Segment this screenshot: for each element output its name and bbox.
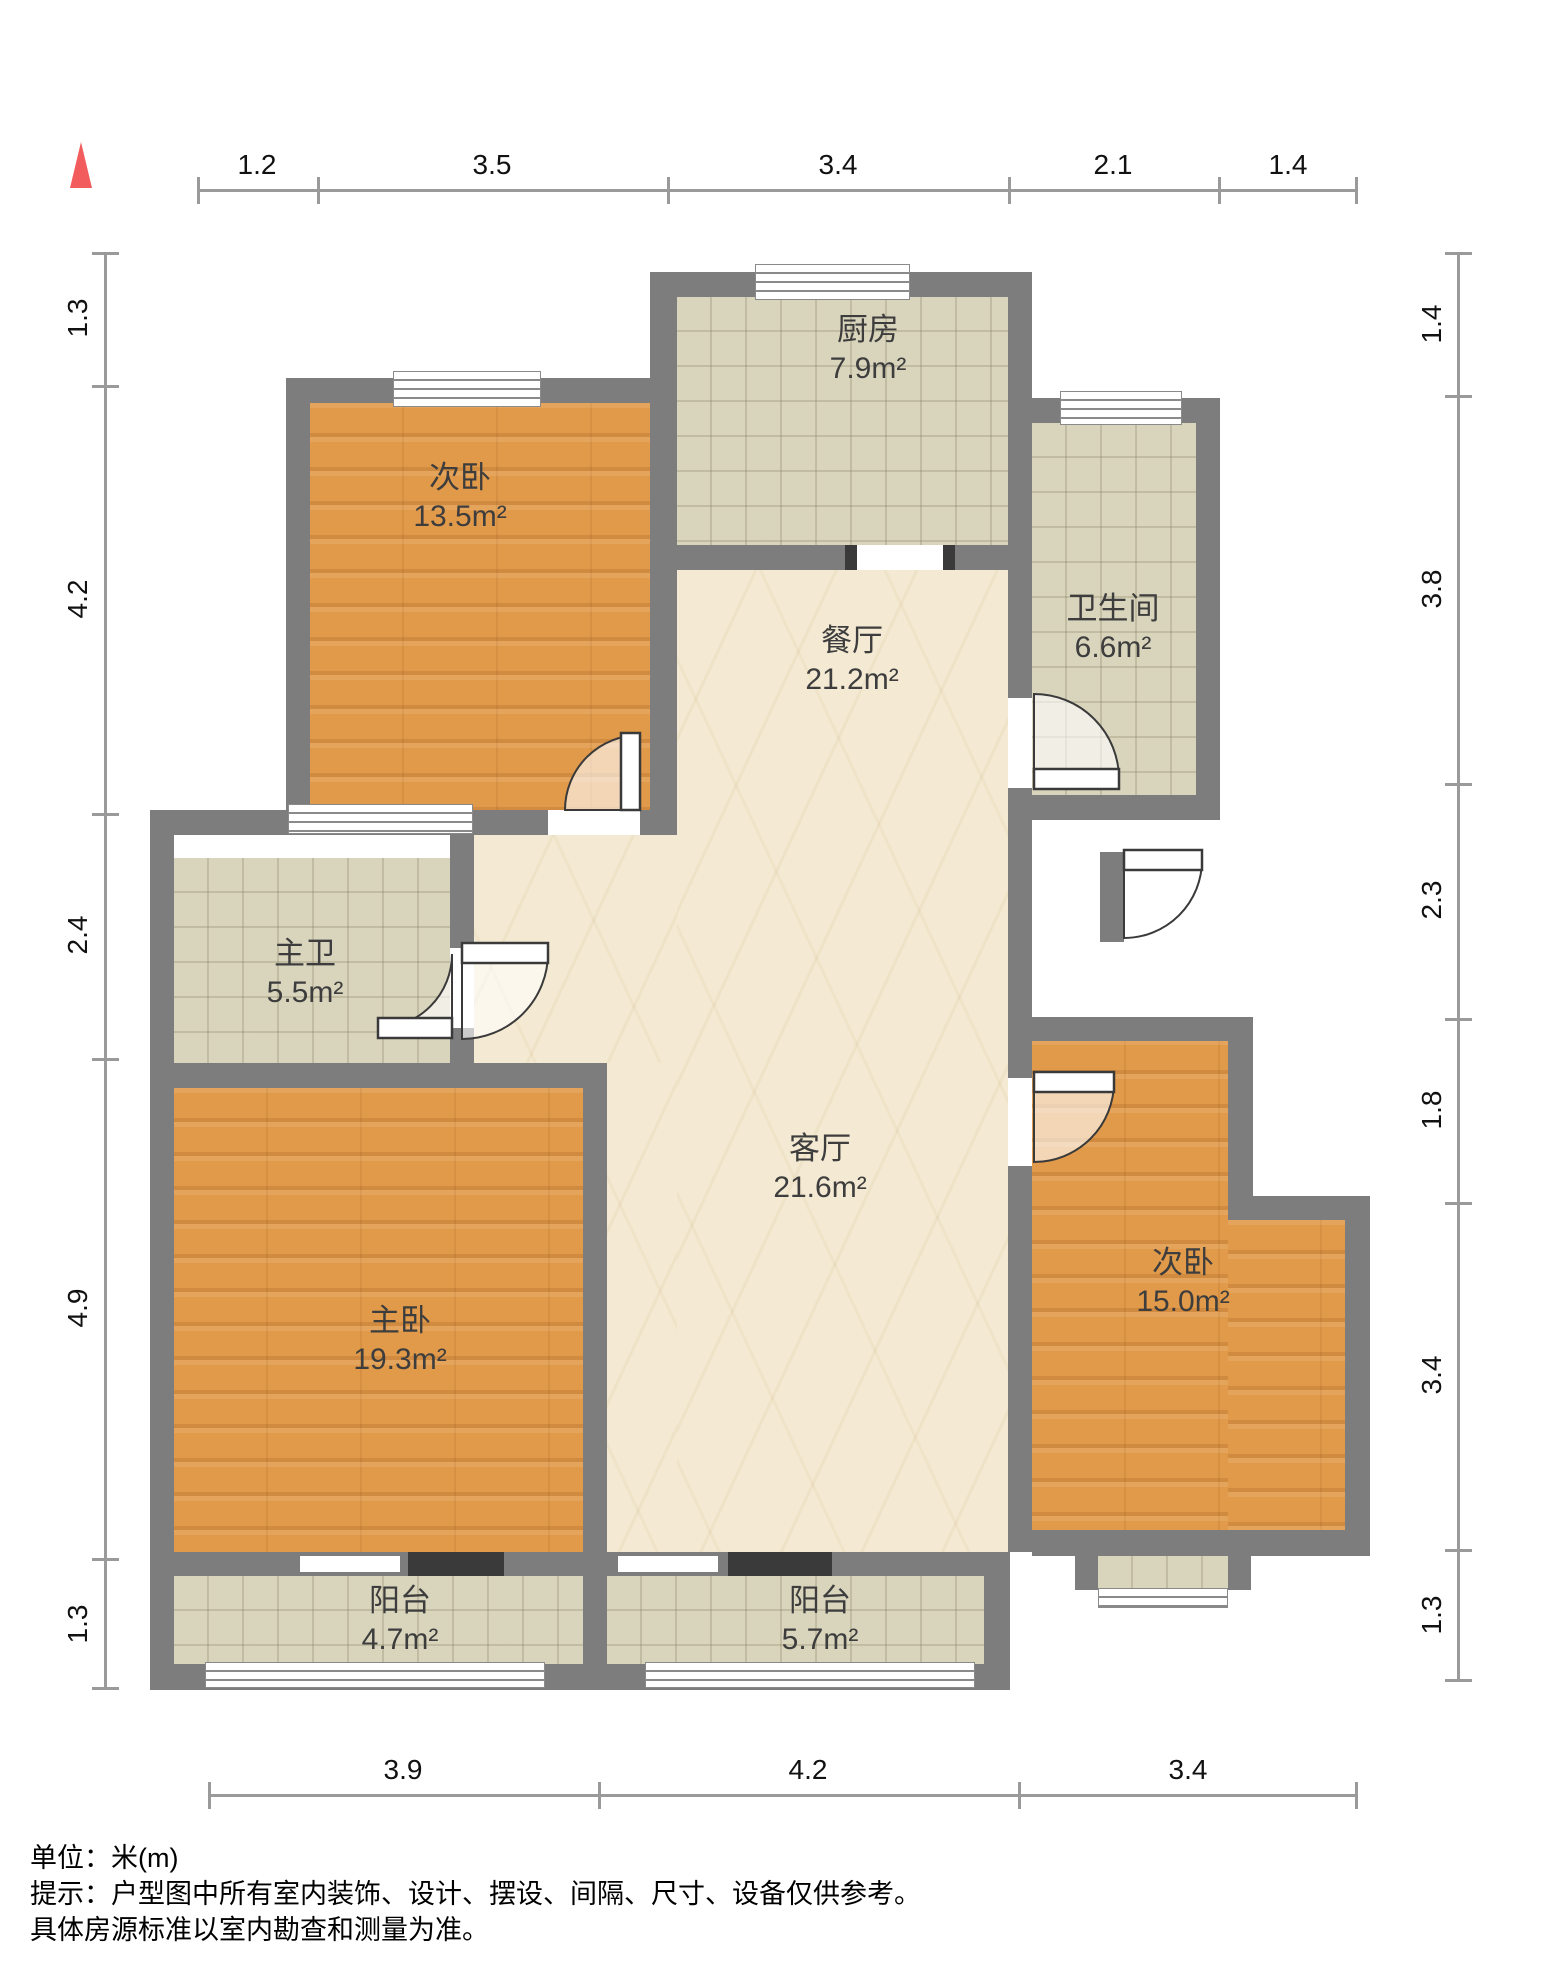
room-name: 阳台 xyxy=(782,1581,859,1621)
entry-door-arc xyxy=(1124,860,1202,938)
ruler-tick xyxy=(92,1558,119,1561)
ruler-bottom-line xyxy=(208,1794,1358,1797)
room-area: 5.5m² xyxy=(267,974,344,1012)
ruler-tick xyxy=(1445,783,1472,786)
dim-label: 3.4 xyxy=(1169,1754,1208,1786)
footer-disclaimer: 单位：米(m) 提示：户型图中所有室内装饰、设计、摆设、间隔、尺寸、设备仅供参考… xyxy=(30,1840,1530,1948)
door-leaf xyxy=(378,1018,452,1038)
room-name: 主卫 xyxy=(267,934,344,974)
room-name: 次卧 xyxy=(1136,1243,1229,1283)
room-label-balcony-right: 阳台 5.7m² xyxy=(782,1581,859,1659)
room-area: 7.9m² xyxy=(830,350,907,388)
ruler-tick xyxy=(1445,1018,1472,1021)
ruler-top-line xyxy=(197,189,1358,192)
footer-tip-line: 提示：户型图中所有室内装饰、设计、摆设、间隔、尺寸、设备仅供参考。 xyxy=(30,1876,1530,1912)
ruler-tick xyxy=(667,177,670,204)
room-label-bedroom-top: 次卧 13.5m² xyxy=(413,458,506,536)
ruler-tick xyxy=(1445,252,1472,255)
room-area: 19.3m² xyxy=(353,1341,446,1379)
dim-label: 4.2 xyxy=(62,580,94,619)
door-leaf xyxy=(462,943,548,963)
dim-label: 2.4 xyxy=(62,916,94,955)
footer-unit-line: 单位：米(m) xyxy=(30,1840,1530,1876)
ruler-tick xyxy=(1445,395,1472,398)
ruler-tick xyxy=(1008,177,1011,204)
footer-note-line: 具体房源标准以室内勘查和测量为准。 xyxy=(30,1912,1530,1948)
dim-label: 4.2 xyxy=(789,1754,828,1786)
dim-label: 3.5 xyxy=(473,149,512,181)
ruler-tick xyxy=(317,177,320,204)
room-name: 餐厅 xyxy=(805,621,898,661)
ruler-tick xyxy=(92,1058,119,1061)
door-leaf xyxy=(1124,850,1202,870)
ruler-tick xyxy=(92,813,119,816)
master-bedroom-door-arc xyxy=(462,953,548,1039)
dim-label: 3.4 xyxy=(1416,1356,1448,1395)
room-name: 卫生间 xyxy=(1067,589,1160,629)
dim-label: 1.3 xyxy=(62,1605,94,1644)
ruler-tick xyxy=(1018,1782,1021,1809)
ruler-tick xyxy=(1445,1679,1472,1682)
room-area: 21.6m² xyxy=(773,1169,866,1207)
dim-label: 1.3 xyxy=(62,299,94,338)
room-label-bedroom-right: 次卧 15.0m² xyxy=(1136,1243,1229,1321)
door-leaf xyxy=(621,733,640,810)
bedroom-right-door-arc xyxy=(1034,1082,1114,1162)
dim-label: 4.9 xyxy=(62,1289,94,1328)
ruler-tick xyxy=(1445,1202,1472,1205)
dim-label: 3.9 xyxy=(384,1754,423,1786)
ruler-tick xyxy=(92,385,119,388)
doors-overlay xyxy=(0,0,1562,1982)
dim-label: 1.4 xyxy=(1416,305,1448,344)
room-area: 4.7m² xyxy=(362,1621,439,1659)
dim-label: 3.8 xyxy=(1416,570,1448,609)
room-area: 13.5m² xyxy=(413,498,506,536)
room-area: 6.6m² xyxy=(1067,629,1160,667)
bathroom-door-arc xyxy=(1034,694,1119,779)
dim-label: 1.4 xyxy=(1269,149,1308,181)
dim-label: 1.8 xyxy=(1416,1091,1448,1130)
ruler-tick xyxy=(92,1687,119,1690)
ruler-tick xyxy=(1355,1782,1358,1809)
ruler-tick xyxy=(92,252,119,255)
room-label-balcony-left: 阳台 4.7m² xyxy=(362,1581,439,1659)
ruler-left-line xyxy=(104,252,107,1690)
ruler-tick xyxy=(1355,177,1358,204)
room-label-master-bedroom: 主卧 19.3m² xyxy=(353,1301,446,1379)
room-label-bathroom: 卫生间 6.6m² xyxy=(1067,589,1160,667)
ruler-tick xyxy=(1218,177,1221,204)
dim-label: 2.3 xyxy=(1416,881,1448,920)
room-area: 5.7m² xyxy=(782,1621,859,1659)
room-area: 21.2m² xyxy=(805,661,898,699)
room-label-dining: 餐厅 21.2m² xyxy=(805,621,898,699)
room-area: 15.0m² xyxy=(1136,1283,1229,1321)
ruler-tick xyxy=(208,1782,211,1809)
ruler-right-line xyxy=(1457,252,1460,1682)
room-label-master-bath: 主卫 5.5m² xyxy=(267,934,344,1012)
dim-label: 2.1 xyxy=(1094,149,1133,181)
room-label-kitchen: 厨房 7.9m² xyxy=(830,310,907,388)
room-name: 次卧 xyxy=(413,458,506,498)
ruler-tick xyxy=(598,1782,601,1809)
floorplan-canvas: 厨房 7.9m² 次卧 13.5m² 卫生间 6.6m² 餐厅 21.2m² 主… xyxy=(0,0,1562,1982)
dim-label: 3.4 xyxy=(819,149,858,181)
dim-label: 1.3 xyxy=(1416,1596,1448,1635)
room-name: 厨房 xyxy=(830,310,907,350)
dim-label: 1.2 xyxy=(238,149,277,181)
room-label-living: 客厅 21.6m² xyxy=(773,1129,866,1207)
room-name: 主卧 xyxy=(353,1301,446,1341)
door-leaf xyxy=(1034,1072,1114,1092)
ruler-tick xyxy=(197,177,200,204)
ruler-tick xyxy=(1445,1549,1472,1552)
room-name: 客厅 xyxy=(773,1129,866,1169)
door-leaf xyxy=(1034,769,1119,789)
room-name: 阳台 xyxy=(362,1581,439,1621)
